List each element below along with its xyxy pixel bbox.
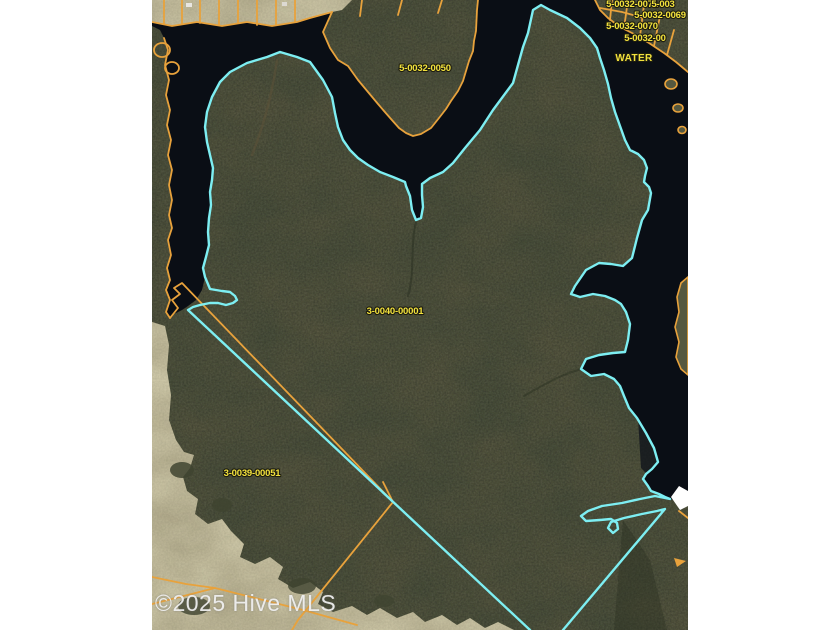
building-roof	[282, 2, 287, 6]
parcel-label-neighbor-sw: 3-0039-00051	[224, 468, 282, 479]
parcel-label-ne-3: 5-0032-0070	[606, 21, 658, 32]
parcel-label-subject: 3-0040-00001	[367, 306, 425, 317]
building-roof	[186, 3, 192, 7]
parcel-label-peninsula: 5-0032-0050	[399, 63, 451, 74]
mls-map-photo: 5-0032-0050 3-0040-00001 3-0039-00051 5-…	[0, 0, 840, 630]
parcel-label-ne-1b: 5-003	[651, 0, 674, 10]
watermark: ©2025 Hive MLS	[155, 590, 336, 617]
water-label: WATER	[615, 53, 653, 64]
parcel-label-ne-2: 5-0032-0069	[634, 10, 686, 21]
parcel-label-ne-4: 5-0032-00	[624, 33, 666, 44]
parcel-map: 5-0032-0050 3-0040-00001 3-0039-00051 5-…	[152, 0, 688, 630]
